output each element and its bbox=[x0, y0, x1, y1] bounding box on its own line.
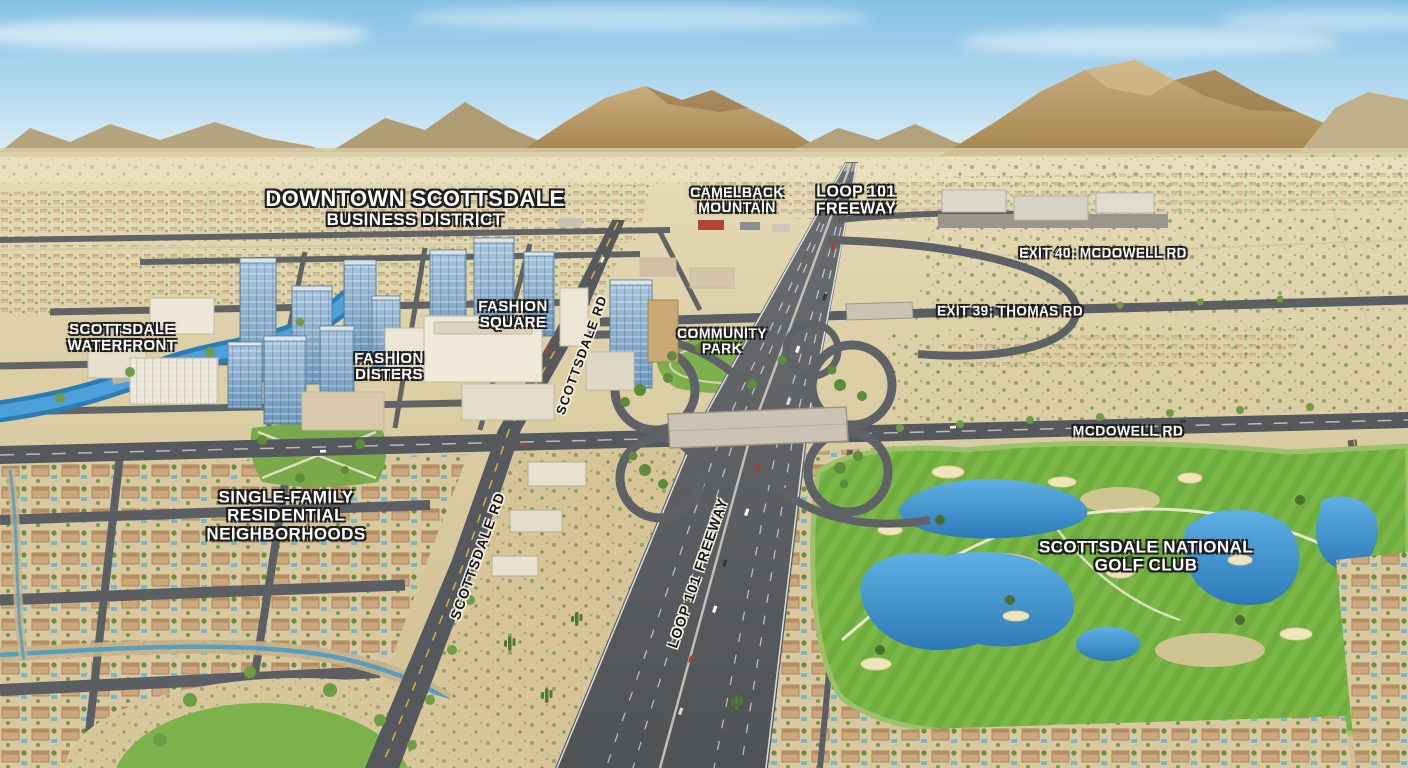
label-downtown: DOWNTOWN SCOTTSDALE BUSINESS DISTRICT bbox=[265, 187, 564, 229]
label-scottsdale-waterfront: SCOTTSDALE WATERFRONT bbox=[68, 322, 177, 354]
label-mcdowell-rd: MCDOWELL RD bbox=[1073, 423, 1184, 438]
label-golf-club: SCOTTSDALE NATIONAL GOLF CLUB bbox=[1039, 539, 1253, 576]
scottsdale-aerial-map: DOWNTOWN SCOTTSDALE BUSINESS DISTRICT CA… bbox=[0, 0, 1408, 768]
label-fashion-square: FASHION SQUARE bbox=[478, 299, 547, 331]
label-loop101-freeway: LOOP 101 FREEWAY bbox=[816, 184, 896, 219]
label-fashion-district: FASHION DISTERS bbox=[354, 351, 423, 383]
label-community-park: COMMUNITY PARK bbox=[677, 326, 767, 356]
label-exit-40-mcdowell: EXIT 40: MCDOWELL RD bbox=[1019, 247, 1187, 262]
label-downtown-title: DOWNTOWN SCOTTSDALE bbox=[265, 187, 564, 211]
label-downtown-sub: BUSINESS DISTRICT bbox=[265, 211, 564, 229]
label-camelback-mountain: CAMELBACK MOUNTAIN bbox=[690, 185, 784, 215]
label-residential: SINGLE-FAMILY RESIDENTIAL NEIGHBORHOODS bbox=[206, 488, 365, 543]
label-exit-39-thomas: EXIT 39: THOMAS RD bbox=[937, 305, 1083, 320]
map-illustration bbox=[0, 0, 1408, 768]
